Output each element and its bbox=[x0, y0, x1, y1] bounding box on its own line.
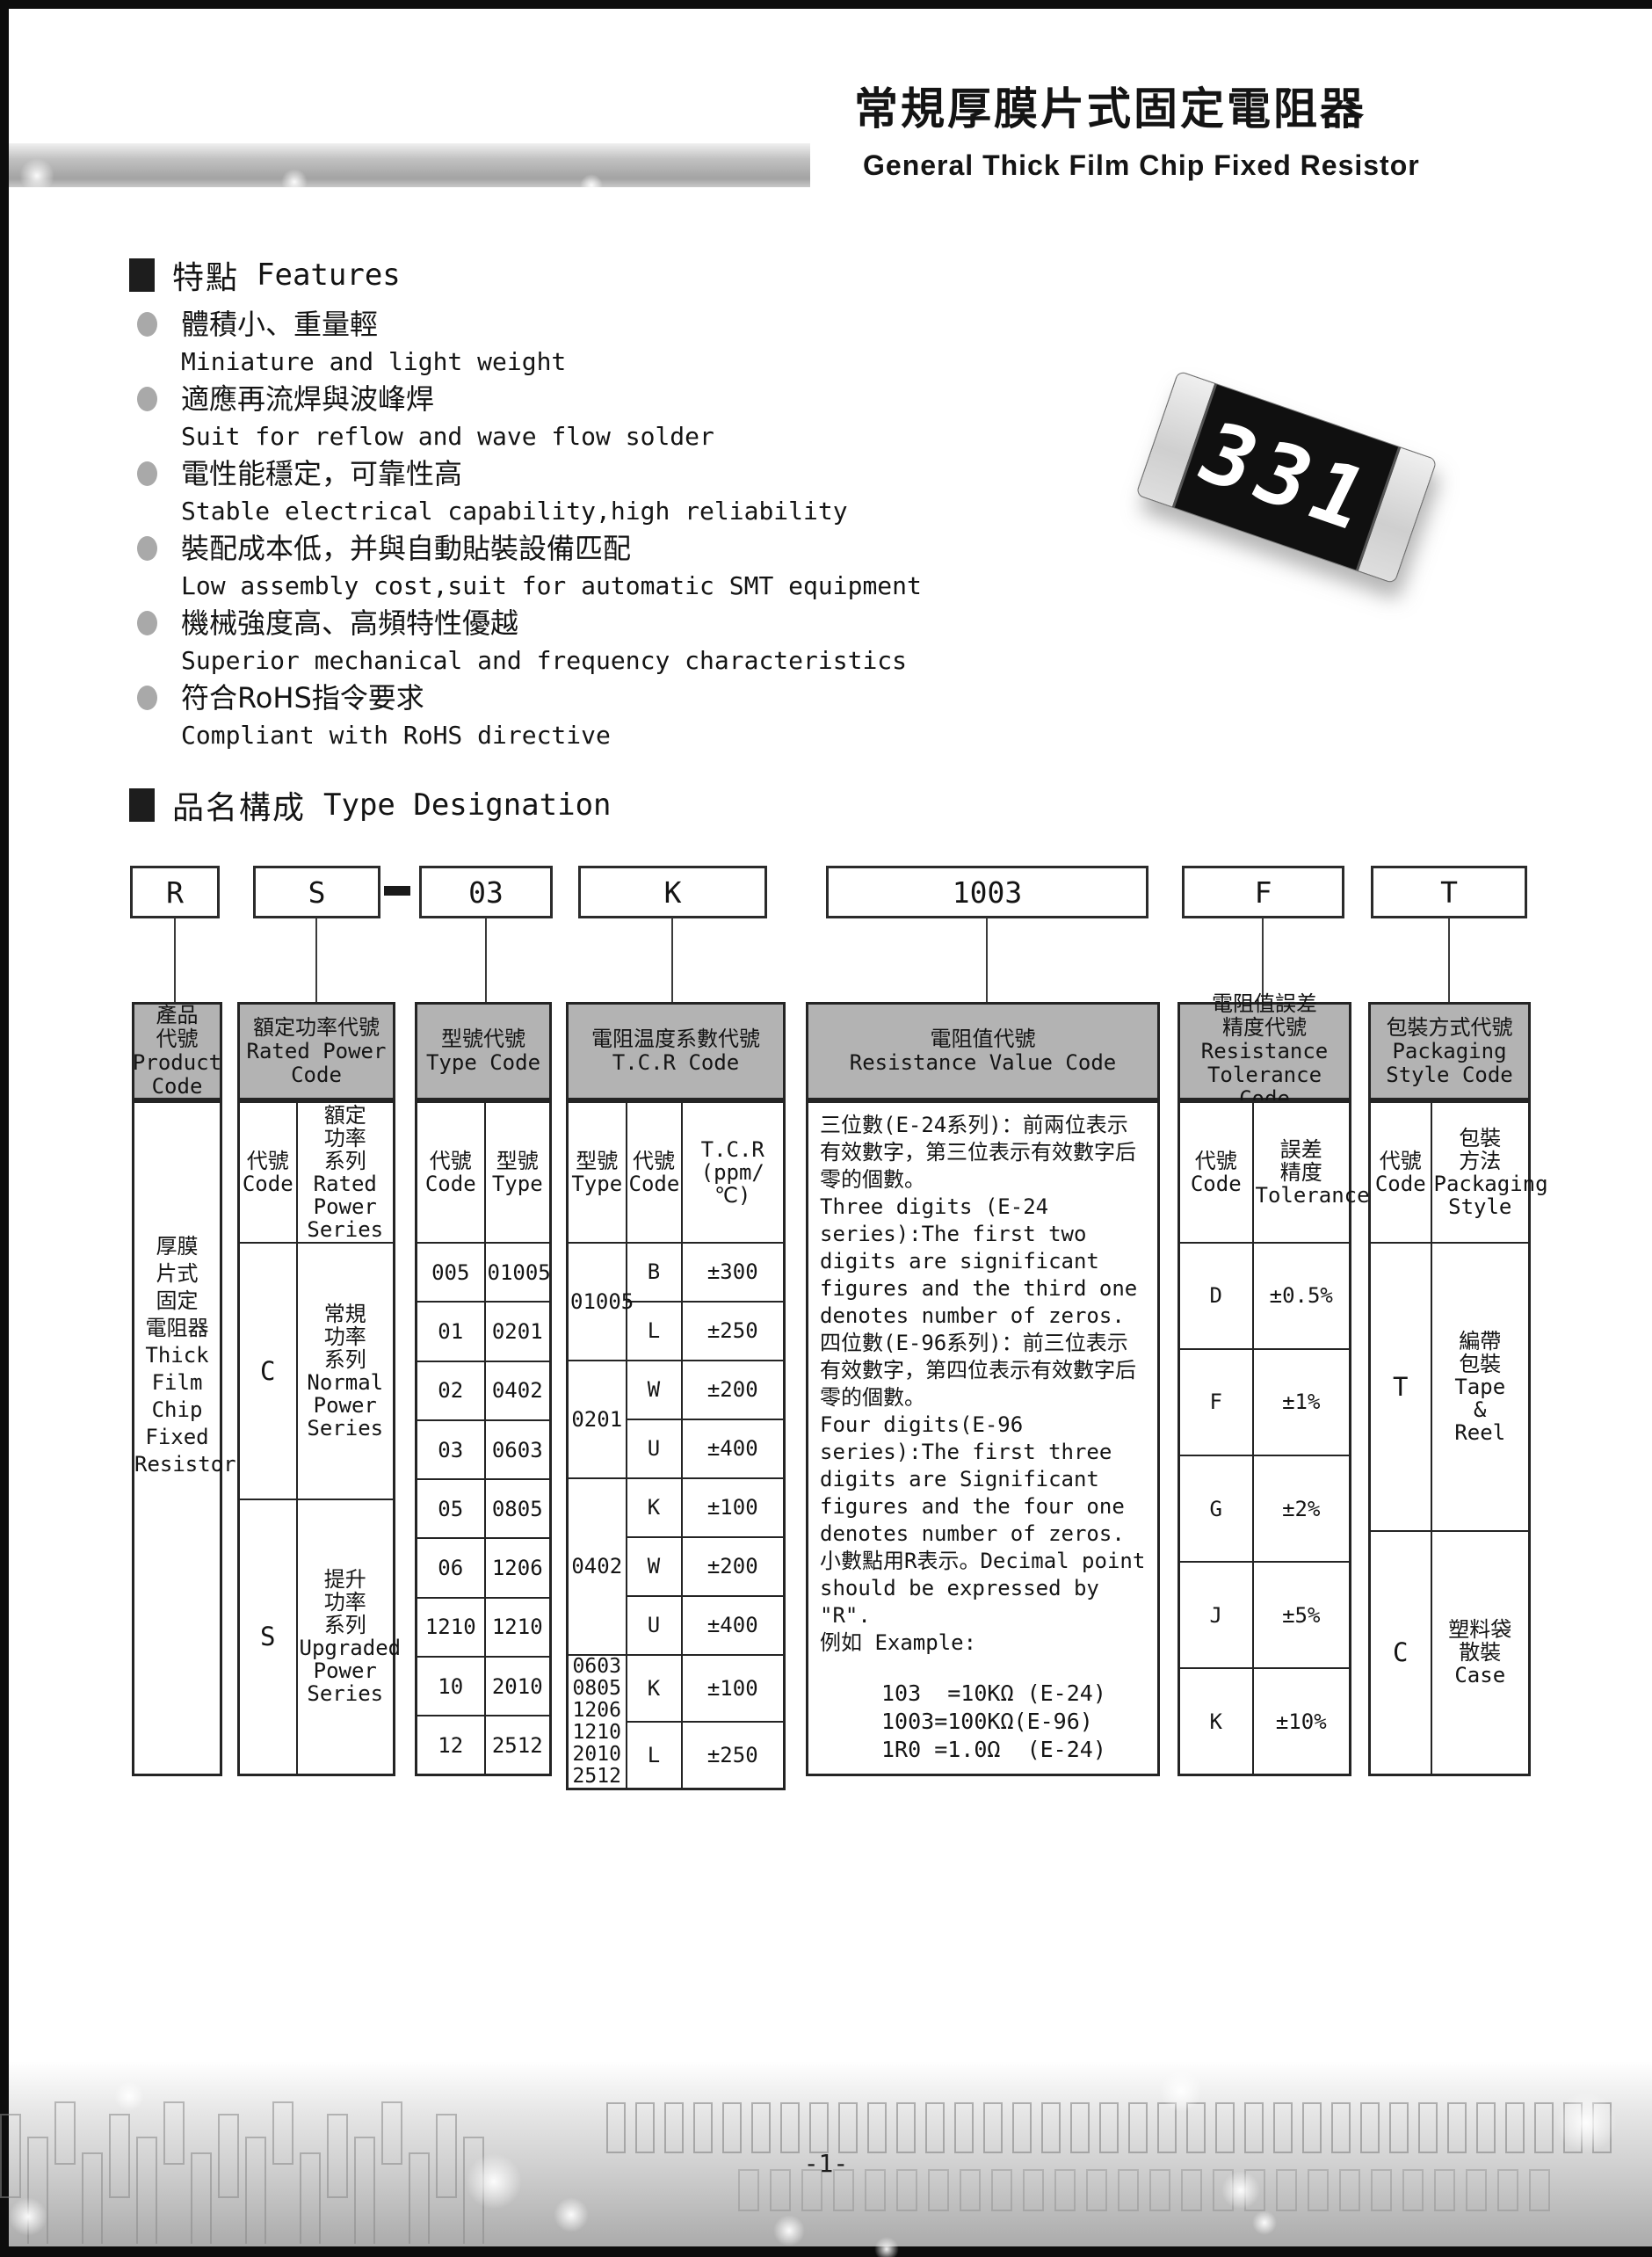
tcr-value: ±250 bbox=[682, 1722, 785, 1789]
leader-line bbox=[1448, 918, 1450, 1003]
leader-line bbox=[174, 918, 176, 1003]
value-paragraph: Four digits(E-96 series):The first three… bbox=[820, 1412, 1146, 1548]
sparkle-decoration bbox=[281, 169, 308, 195]
power-code: C bbox=[239, 1243, 297, 1499]
subheader-code: 代號 Code bbox=[627, 1102, 682, 1243]
feature-item: 符合RoHS指令要求 Compliant with RoHS directive bbox=[132, 679, 1011, 753]
tolerance-code: J bbox=[1179, 1562, 1253, 1668]
sparkle-decoration bbox=[9, 2197, 47, 2236]
tolerance-code: F bbox=[1179, 1349, 1253, 1455]
leader-line bbox=[315, 918, 317, 1003]
tcr-code: L bbox=[627, 1302, 682, 1361]
feature-text-en: Superior mechanical and frequency charac… bbox=[181, 642, 1011, 679]
type-code: 06 bbox=[417, 1538, 485, 1597]
tcr-code: L bbox=[627, 1722, 682, 1789]
power-series: 提升 功率 系列 Upgraded Power Series bbox=[297, 1499, 395, 1775]
tcr-value: ±250 bbox=[682, 1302, 785, 1361]
subheader-tolerance: 誤差 精度 Tolerance bbox=[1253, 1102, 1351, 1243]
tolerance-table: 代號 Code 誤差 精度 Tolerance D±0.5% F±1% G±2%… bbox=[1177, 1100, 1351, 1776]
tcr-code: W bbox=[627, 1361, 682, 1419]
column-header-value: 電阻值代號 Resistance Value Code bbox=[806, 1002, 1160, 1100]
tolerance-code: K bbox=[1179, 1668, 1253, 1774]
page-border-left bbox=[0, 0, 9, 2257]
subheader-code: 代號 Code bbox=[417, 1102, 485, 1244]
tcr-value: ±100 bbox=[682, 1655, 785, 1722]
feature-item: 電性能穩定，可靠性高 Stable electrical capability,… bbox=[132, 454, 1011, 529]
page-border-top bbox=[0, 0, 1652, 9]
code-box-tolerance: F bbox=[1182, 866, 1344, 918]
type-designation-section-heading: 品名構成 Type Designation bbox=[129, 782, 612, 828]
designation-heading-en: Type Designation bbox=[323, 787, 612, 823]
type-code: 10 bbox=[417, 1657, 485, 1716]
tcr-code: K bbox=[627, 1655, 682, 1722]
product-code-cell: 厚膜 片式 固定 電阻器 Thick Film Chip Fixed Resis… bbox=[132, 1100, 222, 1776]
feature-text-zh: 裝配成本低，并與自動貼裝設備匹配 bbox=[181, 529, 1011, 568]
column-header-tolerance: 電阻值誤差 精度代號 Resistance Tolerance Code bbox=[1177, 1002, 1351, 1100]
page-number: -1- bbox=[0, 2149, 1652, 2178]
feature-item: 適應再流焊與波峰焊 Suit for reflow and wave flow … bbox=[132, 380, 1011, 454]
type-size: 0402 bbox=[485, 1361, 551, 1420]
tcr-value: ±200 bbox=[682, 1361, 785, 1419]
tolerance-value: ±10% bbox=[1253, 1668, 1351, 1774]
feature-text-zh: 電性能穩定，可靠性高 bbox=[181, 454, 1011, 493]
type-size: 0603 bbox=[485, 1420, 551, 1479]
features-section-heading: 特點 Features bbox=[129, 252, 401, 298]
subheader-type: 型號 Type bbox=[485, 1102, 551, 1244]
feature-text-en: Miniature and light weight bbox=[181, 344, 1011, 380]
code-separator-dash bbox=[384, 886, 410, 896]
type-size: 1206 bbox=[485, 1538, 551, 1597]
tcr-type-group: 0603 0805 1206 1210 2010 2512 bbox=[568, 1655, 627, 1789]
sparkle-decoration bbox=[1252, 2210, 1277, 2235]
features-heading-zh: 特點 bbox=[172, 252, 239, 298]
type-code: 03 bbox=[417, 1420, 485, 1479]
tcr-code: B bbox=[627, 1243, 682, 1302]
bullet-icon bbox=[137, 387, 157, 411]
type-size: 0201 bbox=[485, 1302, 551, 1361]
subheader-tcr: T.C.R (ppm/℃) bbox=[682, 1102, 785, 1243]
packaging-table: 代號 Code 包裝 方法 Packaging Style T 編帶 包裝 Ta… bbox=[1368, 1100, 1531, 1776]
tcr-code: W bbox=[627, 1537, 682, 1596]
designation-heading-zh: 品名構成 bbox=[172, 782, 306, 828]
subheader-code: 代號 Code bbox=[1179, 1102, 1253, 1243]
tcr-type-group: 0201 bbox=[568, 1361, 627, 1478]
rated-power-table: 代號 Code 額定 功率 系列 Rated Power Series C 常規… bbox=[237, 1100, 395, 1776]
tcr-value: ±400 bbox=[682, 1419, 785, 1478]
tcr-code: K bbox=[627, 1478, 682, 1537]
tcr-table: 型號 Type 代號 Code T.C.R (ppm/℃) 01005 B ±3… bbox=[566, 1100, 786, 1776]
sparkle-decoration bbox=[114, 2081, 144, 2111]
value-paragraph: 三位數(E-24系列)：前兩位表示有效數字，第三位表示有效數字后零的個數。 bbox=[820, 1112, 1146, 1194]
feature-item: 機械強度高、高頻特性優越 Superior mechanical and fre… bbox=[132, 604, 1011, 679]
type-size: 0805 bbox=[485, 1479, 551, 1538]
bullet-icon bbox=[137, 536, 157, 561]
tcr-value: ±400 bbox=[682, 1596, 785, 1655]
code-box-product: R bbox=[130, 866, 220, 918]
subheader-series: 額定 功率 系列 Rated Power Series bbox=[297, 1102, 395, 1243]
sparkle-decoration bbox=[1160, 2070, 1202, 2112]
column-header-packaging: 包裝方式代號 Packaging Style Code bbox=[1368, 1002, 1531, 1100]
code-box-type: 03 bbox=[419, 866, 553, 918]
leader-line bbox=[1262, 918, 1264, 1003]
sparkle-decoration bbox=[580, 174, 603, 197]
power-code: S bbox=[239, 1499, 297, 1775]
tolerance-value: ±2% bbox=[1253, 1455, 1351, 1562]
product-code-description: 厚膜 片式 固定 電阻器 Thick Film Chip Fixed Resis… bbox=[134, 1103, 220, 1478]
column-header-tcr: 電阻温度系數代號 T.C.R Code bbox=[566, 1002, 786, 1100]
page-title-english: General Thick Film Chip Fixed Resistor bbox=[863, 149, 1420, 182]
type-code-table: 代號 Code 型號 Type 00501005 010201 020402 0… bbox=[415, 1100, 552, 1776]
tolerance-value: ±0.5% bbox=[1253, 1243, 1351, 1349]
type-code: 12 bbox=[417, 1716, 485, 1774]
page-title-chinese: 常規厚膜片式固定電阻器 bbox=[854, 74, 1366, 137]
feature-text-en: Suit for reflow and wave flow solder bbox=[181, 418, 1011, 454]
features-heading-en: Features bbox=[257, 258, 401, 293]
type-code: 05 bbox=[417, 1479, 485, 1538]
tcr-value: ±300 bbox=[682, 1243, 785, 1302]
packaging-style: 編帶 包裝 Tape & Reel bbox=[1431, 1243, 1530, 1531]
feature-text-zh: 符合RoHS指令要求 bbox=[181, 679, 1011, 717]
type-size: 01005 bbox=[485, 1243, 551, 1302]
feature-text-en: Stable electrical capability,high reliab… bbox=[181, 493, 1011, 529]
tolerance-value: ±1% bbox=[1253, 1349, 1351, 1455]
sparkle-decoration bbox=[773, 2215, 805, 2246]
type-code: 01 bbox=[417, 1302, 485, 1361]
footer-pattern-right-top bbox=[606, 2102, 1643, 2153]
bullet-icon bbox=[137, 312, 157, 337]
packaging-code: C bbox=[1370, 1531, 1431, 1775]
feature-text-zh: 機械強度高、高頻特性優越 bbox=[181, 604, 1011, 642]
sparkle-decoration bbox=[874, 2237, 899, 2257]
value-paragraph: 小數點用R表示。Decimal point should be expresse… bbox=[820, 1548, 1146, 1629]
code-box-power: S bbox=[253, 866, 380, 918]
type-size: 2010 bbox=[485, 1657, 551, 1716]
section-square-icon bbox=[129, 788, 155, 822]
type-code: 02 bbox=[417, 1361, 485, 1420]
packaging-style: 塑料袋 散裝 Case bbox=[1431, 1531, 1530, 1775]
subheader-style: 包裝 方法 Packaging Style bbox=[1431, 1102, 1530, 1243]
chip-resistor-photo: 331 bbox=[1135, 370, 1438, 584]
header-decorative-band bbox=[9, 143, 810, 187]
value-paragraph: 例如 Example: bbox=[820, 1629, 1146, 1657]
feature-item: 體積小、重量輕 Miniature and light weight bbox=[132, 305, 1011, 380]
resistance-value-cell: 三位數(E-24系列)：前兩位表示有效數字，第三位表示有效數字后零的個數。 Th… bbox=[806, 1100, 1160, 1776]
tolerance-value: ±5% bbox=[1253, 1562, 1351, 1668]
subheader-code: 代號 Code bbox=[1370, 1102, 1431, 1243]
type-code: 005 bbox=[417, 1243, 485, 1302]
value-paragraph: 四位數(E-96系列)：前三位表示有效數字，第四位表示有效數字后零的個數。 bbox=[820, 1330, 1146, 1412]
code-box-tcr: K bbox=[578, 866, 767, 918]
value-examples: 103 =10KΩ (E-24) 1003=100KΩ(E-96) 1R0 =1… bbox=[881, 1680, 1146, 1764]
sparkle-decoration bbox=[1555, 2092, 1617, 2153]
tolerance-code: G bbox=[1179, 1455, 1253, 1562]
leader-line bbox=[671, 918, 673, 1003]
datasheet-page: 常規厚膜片式固定電阻器 General Thick Film Chip Fixe… bbox=[0, 0, 1652, 2257]
resistance-value-description: 三位數(E-24系列)：前兩位表示有效數字，第三位表示有效數字后零的個數。 Th… bbox=[808, 1103, 1157, 1773]
column-header-type: 型號代號 Type Code bbox=[415, 1002, 552, 1100]
page-border-bottom bbox=[0, 2246, 1652, 2257]
subheader-type: 型號 Type bbox=[568, 1102, 627, 1243]
feature-item: 裝配成本低，并與自動貼裝設備匹配 Low assembly cost,suit … bbox=[132, 529, 1011, 604]
subheader-code: 代號 Code bbox=[239, 1102, 297, 1243]
tcr-code: U bbox=[627, 1419, 682, 1478]
features-list: 體積小、重量輕 Miniature and light weight 適應再流焊… bbox=[132, 305, 1011, 753]
tcr-value: ±200 bbox=[682, 1537, 785, 1596]
bullet-icon bbox=[137, 686, 157, 710]
feature-text-en: Compliant with RoHS directive bbox=[181, 717, 1011, 753]
leader-line bbox=[986, 918, 988, 1003]
sparkle-decoration bbox=[554, 2197, 589, 2232]
leader-line bbox=[485, 918, 487, 1003]
tcr-type-group: 0402 bbox=[568, 1478, 627, 1655]
value-paragraph: Three digits (E-24 series):The first two… bbox=[820, 1194, 1146, 1330]
type-size: 2512 bbox=[485, 1716, 551, 1774]
code-box-packaging: T bbox=[1371, 866, 1527, 918]
tcr-code: U bbox=[627, 1596, 682, 1655]
code-box-value: 1003 bbox=[826, 866, 1148, 918]
column-header-power: 額定功率代號 Rated Power Code bbox=[237, 1002, 395, 1100]
feature-text-zh: 適應再流焊與波峰焊 bbox=[181, 380, 1011, 418]
column-header-product: 產品 代號 Product Code bbox=[132, 1002, 222, 1100]
feature-text-zh: 體積小、重量輕 bbox=[181, 305, 1011, 344]
bullet-icon bbox=[137, 461, 157, 486]
type-code: 1210 bbox=[417, 1598, 485, 1657]
tolerance-code: D bbox=[1179, 1243, 1253, 1349]
tcr-type-group: 01005 bbox=[568, 1243, 627, 1361]
section-square-icon bbox=[129, 258, 155, 292]
packaging-code: T bbox=[1370, 1243, 1431, 1531]
bullet-icon bbox=[137, 611, 157, 635]
sparkle-decoration bbox=[19, 158, 54, 193]
type-size: 1210 bbox=[485, 1598, 551, 1657]
tcr-value: ±100 bbox=[682, 1478, 785, 1537]
power-series: 常規 功率 系列 Normal Power Series bbox=[297, 1243, 395, 1499]
feature-text-en: Low assembly cost,suit for automatic SMT… bbox=[181, 568, 1011, 604]
